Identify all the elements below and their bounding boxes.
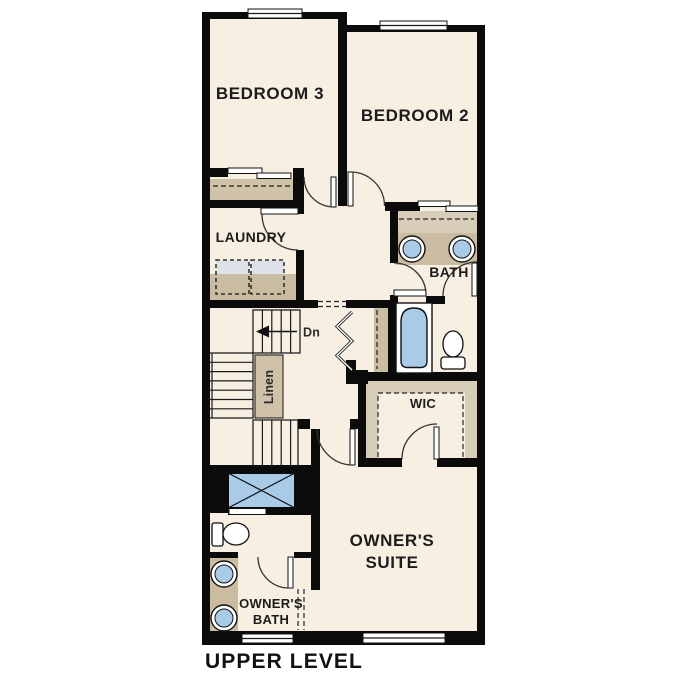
wall-suite-west (311, 429, 320, 590)
dryer-top (252, 261, 284, 275)
bedroom3-closet-shelf (210, 179, 293, 200)
owners-bath-door-leaf (288, 557, 293, 588)
owners-sink-top-icon (211, 561, 237, 587)
linen-label: Linen (262, 370, 276, 404)
shower-icon (228, 473, 295, 508)
laundry-counter (210, 274, 296, 300)
shower-door (229, 509, 266, 515)
owners-suite-door-leaf (350, 429, 355, 465)
owners-sink-bottom-icon (211, 605, 237, 631)
stair-lower-flight (253, 420, 298, 467)
wall-bedroom3-south-a (202, 168, 228, 177)
wall-wic-south-a (358, 458, 402, 467)
toilet-tank (212, 523, 223, 546)
toilet-bowl (443, 331, 463, 357)
floor-plan-page: BEDROOM 3 BEDROOM 2 LAUNDRY BATH WIC OWN… (0, 0, 687, 687)
wall-shower-left (210, 473, 228, 513)
owners-suite-label-line1: OWNER'S (350, 531, 435, 550)
hall-closet-shelf (374, 308, 388, 372)
plan-title: UPPER LEVEL (205, 650, 363, 673)
bath-compartment-door-leaf (472, 263, 477, 296)
wall-owners-bath-mid-b (294, 552, 320, 558)
sink-basin (215, 609, 233, 627)
bedroom2-door-leaf (348, 172, 353, 206)
owners-toilet-icon (212, 523, 249, 546)
wic-label: WIC (410, 396, 436, 411)
wall-bedroom3-closet-end (293, 168, 304, 200)
wall-shower-right (295, 465, 311, 515)
wall-bath-west-a (390, 203, 398, 263)
bedroom3-door-leaf (331, 177, 336, 207)
wic-shelf-right (465, 381, 477, 458)
wall-laundry-east-b (296, 250, 304, 308)
wall-laundry-north (202, 200, 304, 208)
wall-exterior-right (477, 25, 485, 645)
wall-wic-west (358, 381, 366, 467)
washer-top (217, 261, 249, 275)
bedroom2-closet-bypass-door-b (446, 206, 478, 212)
bathtub-icon (396, 303, 432, 373)
bath-sink-left-icon (399, 236, 425, 262)
wall-wic-south-b (437, 458, 485, 467)
owners-bath-label-line1: OWNER'S (239, 596, 303, 611)
bath-sink-right-icon (449, 236, 475, 262)
laundry-door-leaf (261, 208, 298, 214)
bedroom2-closet-bypass-door-a (418, 201, 450, 207)
bedroom3-label: BEDROOM 3 (216, 84, 324, 103)
wall-laundry-south (202, 300, 318, 308)
bath-toilet-icon (441, 331, 465, 369)
toilet-bowl (223, 523, 249, 545)
wall-owners-bath-mid-a (202, 552, 238, 558)
wic-shelf-top (366, 381, 477, 393)
wall-bedroom-divider (338, 12, 347, 206)
sink-basin (453, 240, 471, 258)
bath-label: BATH (429, 264, 468, 280)
wall-bedroom2-south (385, 202, 420, 211)
wall-suite-entry-a (298, 419, 310, 429)
bedroom2-label: BEDROOM 2 (361, 106, 469, 125)
wall-bath-tubroom-west (388, 300, 396, 378)
wall-suite-entry-b (350, 419, 358, 429)
wic-door-leaf (434, 427, 439, 459)
tub-basin (401, 308, 427, 368)
laundry-label: LAUNDRY (216, 229, 287, 245)
bath-door-leaf (394, 290, 426, 296)
sink-basin (403, 240, 421, 258)
sink-basin (215, 565, 233, 583)
stairs-down-label: Dn (303, 326, 320, 340)
owners-suite-label-line2: SUITE (365, 553, 418, 572)
owners-bath-label-line2: BATH (253, 612, 289, 627)
wall-exterior-left (202, 12, 210, 645)
floor-plan-drawing: BEDROOM 3 BEDROOM 2 LAUNDRY BATH WIC OWN… (0, 0, 687, 687)
toilet-tank (441, 357, 465, 369)
bedroom3-closet-bypass-door-b (257, 173, 291, 179)
bedroom2-closet-shelf (396, 211, 477, 233)
